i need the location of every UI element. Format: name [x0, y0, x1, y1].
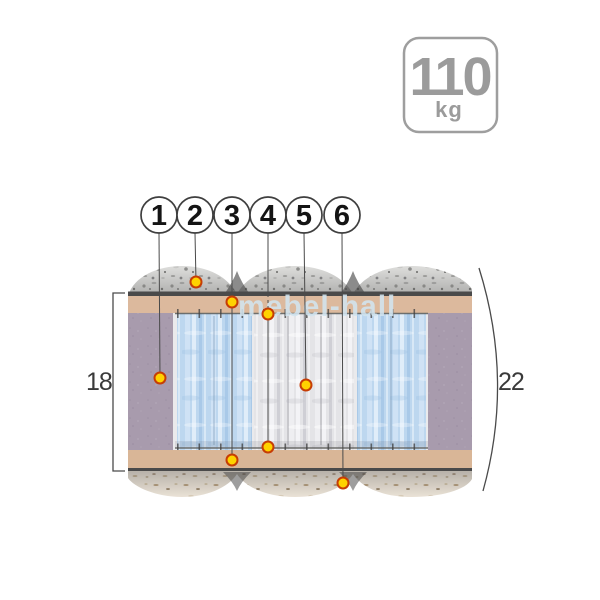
callout-circles: 1 2 3 4 5 6 — [141, 197, 360, 233]
callout-2-number: 2 — [187, 200, 203, 232]
callout-4: 4 — [250, 197, 286, 233]
dimension-bracket-18 — [113, 293, 125, 471]
marker-dot-3a — [227, 297, 238, 308]
callout-3-number: 3 — [224, 200, 240, 232]
marker-dot-2 — [191, 277, 202, 288]
callout-1: 1 — [141, 197, 177, 233]
weight-badge-unit: kg — [435, 97, 463, 122]
bottom-quilted-cover — [128, 471, 472, 497]
callout-4-number: 4 — [260, 200, 276, 232]
watermark-text: mebel-hall — [238, 290, 396, 323]
dimension-arc-22 — [479, 268, 498, 491]
marker-dot-4a — [263, 309, 274, 320]
marker-dot-6 — [338, 478, 349, 489]
bottom-quilt-shade — [128, 471, 472, 497]
side-foam-right — [428, 313, 472, 450]
dimension-total-height: 22 — [479, 268, 524, 491]
spring-core — [128, 313, 472, 450]
dimension-inner-height: 18 — [86, 293, 125, 471]
mattress-cross-section: mebel-hall 18 22 1 — [0, 0, 600, 600]
bottom-felt-layer — [128, 450, 472, 469]
core-bottom-shadow — [175, 441, 428, 448]
callout-1-number: 1 — [151, 200, 167, 232]
marker-dot-4b — [263, 442, 274, 453]
callout-6: 6 — [324, 197, 360, 233]
callout-5: 5 — [286, 197, 322, 233]
callout-3: 3 — [214, 197, 250, 233]
marker-dot-1 — [155, 373, 166, 384]
side-foam-left — [128, 313, 173, 450]
dimension-18-label: 18 — [86, 368, 112, 396]
marker-dot-5 — [301, 380, 312, 391]
marker-dot-3b — [227, 455, 238, 466]
callout-5-number: 5 — [296, 200, 312, 232]
callout-6-number: 6 — [334, 200, 350, 232]
mattress-diagram-page: mebel-hall 18 22 1 — [0, 0, 600, 600]
weight-badge: 110 kg — [404, 38, 497, 132]
callout-2: 2 — [177, 197, 213, 233]
dimension-22-label: 22 — [498, 368, 524, 396]
